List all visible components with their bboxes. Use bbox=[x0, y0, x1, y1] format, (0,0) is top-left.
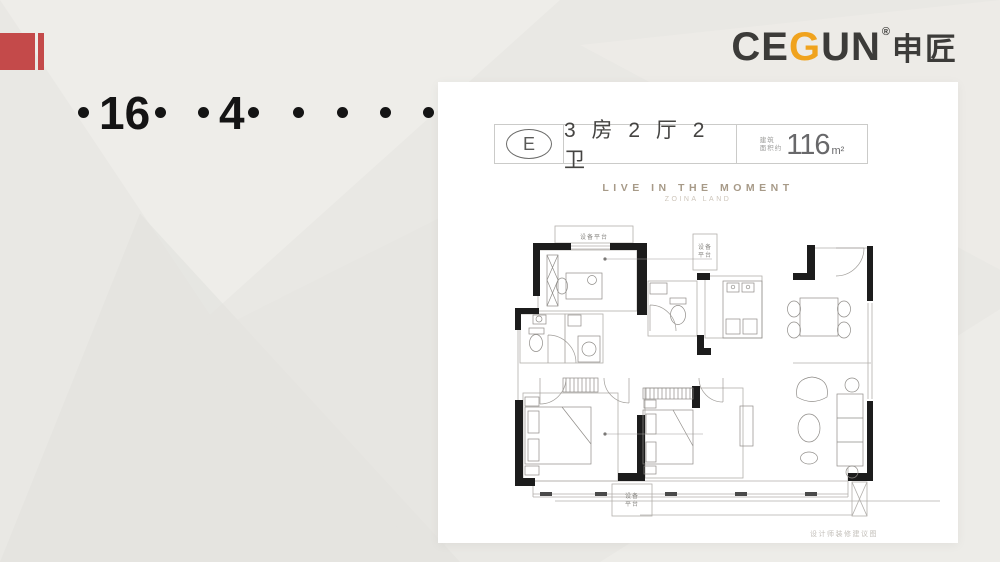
unit-area-cell: 建筑 面积约 116 m² bbox=[737, 125, 867, 163]
row-dot bbox=[198, 107, 209, 118]
plan-label-equipment-bottom-2: 平台 bbox=[625, 500, 639, 508]
row-dot bbox=[337, 107, 348, 118]
logo-text-prefix: CE bbox=[731, 25, 789, 70]
row-dot bbox=[248, 107, 259, 118]
plan-label-equipment-platform-top: 设备平台 bbox=[580, 233, 608, 241]
area-prefix-line2: 面积约 bbox=[760, 145, 783, 153]
plan-note: 设计师装修建议图 bbox=[810, 529, 878, 539]
logo-text-g: G bbox=[789, 25, 821, 70]
unit-label-cell: E bbox=[495, 125, 564, 163]
area-value: 116 bbox=[786, 132, 829, 158]
row-dot bbox=[423, 107, 434, 118]
plan-furniture bbox=[525, 255, 863, 478]
row-dot bbox=[155, 107, 166, 118]
logo-chinese: 申匠 bbox=[892, 24, 958, 69]
row-dot bbox=[293, 107, 304, 118]
plan-structure bbox=[518, 226, 940, 516]
logo-text-suffix: UN bbox=[821, 25, 881, 70]
plan-label-equipment-bottom-1: 设备 bbox=[625, 492, 639, 500]
registered-mark: ® bbox=[882, 26, 890, 38]
floor-plan: 设备平台 设备 平台 设备 平台 bbox=[500, 218, 940, 538]
row-dot bbox=[380, 107, 391, 118]
area-prefix: 建筑 面积约 bbox=[760, 137, 783, 153]
unit-header: E 3 房 2 厅 2 卫 建筑 面积约 116 m² bbox=[494, 124, 868, 164]
unit-rooms-text: 3 房 2 厅 2 卫 bbox=[564, 125, 737, 163]
tagline-sub: ZOINA LAND bbox=[438, 196, 958, 203]
area-prefix-line1: 建筑 bbox=[760, 137, 783, 145]
plan-leader-lines bbox=[603, 257, 712, 435]
dots-row: 164 bbox=[0, 0, 460, 140]
area-unit: m² bbox=[831, 145, 844, 157]
plan-label-equipment-right-2: 平台 bbox=[698, 251, 712, 259]
tagline: LIVE IN THE MOMENT bbox=[438, 182, 958, 194]
unit-label-badge: E bbox=[506, 129, 552, 159]
floor-plan-card: E 3 房 2 厅 2 卫 建筑 面积约 116 m² LIVE IN THE … bbox=[438, 82, 958, 543]
plan-label-equipment-right-1: 设备 bbox=[698, 243, 712, 251]
plan-walls bbox=[515, 243, 873, 486]
plan-doors bbox=[540, 248, 864, 404]
row-number: 16 bbox=[99, 90, 150, 136]
row-number: 4 bbox=[219, 90, 245, 136]
presentation-slide: CEGUN ® 申匠 164 E 3 房 2 厅 2 卫 建筑 面积约 116 … bbox=[0, 0, 1000, 562]
row-dot bbox=[78, 107, 89, 118]
brand-logo: CEGUN ® 申匠 bbox=[731, 24, 958, 70]
